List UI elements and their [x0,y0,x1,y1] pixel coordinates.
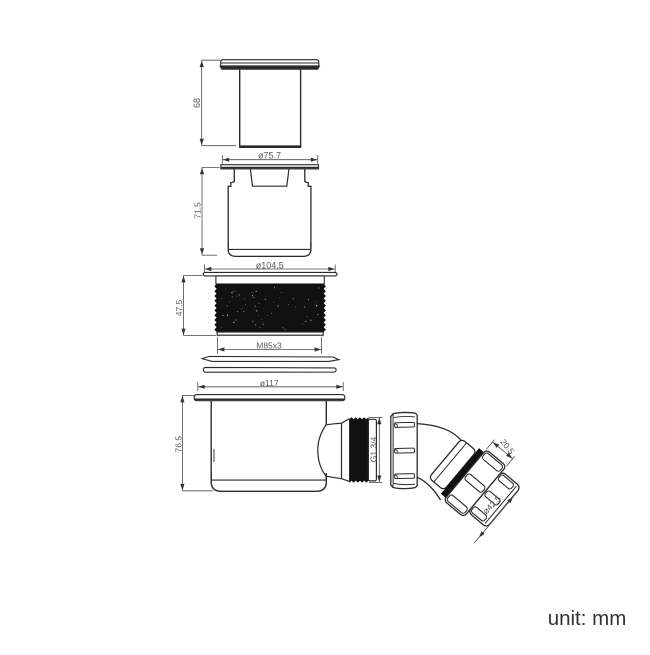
svg-text:ø104.5: ø104.5 [256,260,284,270]
svg-text:71.5: 71.5 [193,202,203,219]
svg-text:M85x3: M85x3 [256,341,282,351]
svg-text:ø75.7: ø75.7 [258,151,281,161]
svg-text:G1.3/4: G1.3/4 [368,436,378,462]
svg-text:47.5: 47.5 [174,299,184,316]
svg-text:68: 68 [192,98,202,108]
svg-text:ø117: ø117 [260,378,279,388]
svg-text:76.5: 76.5 [174,436,184,453]
svg-text:unit: mm: unit: mm [548,607,627,630]
